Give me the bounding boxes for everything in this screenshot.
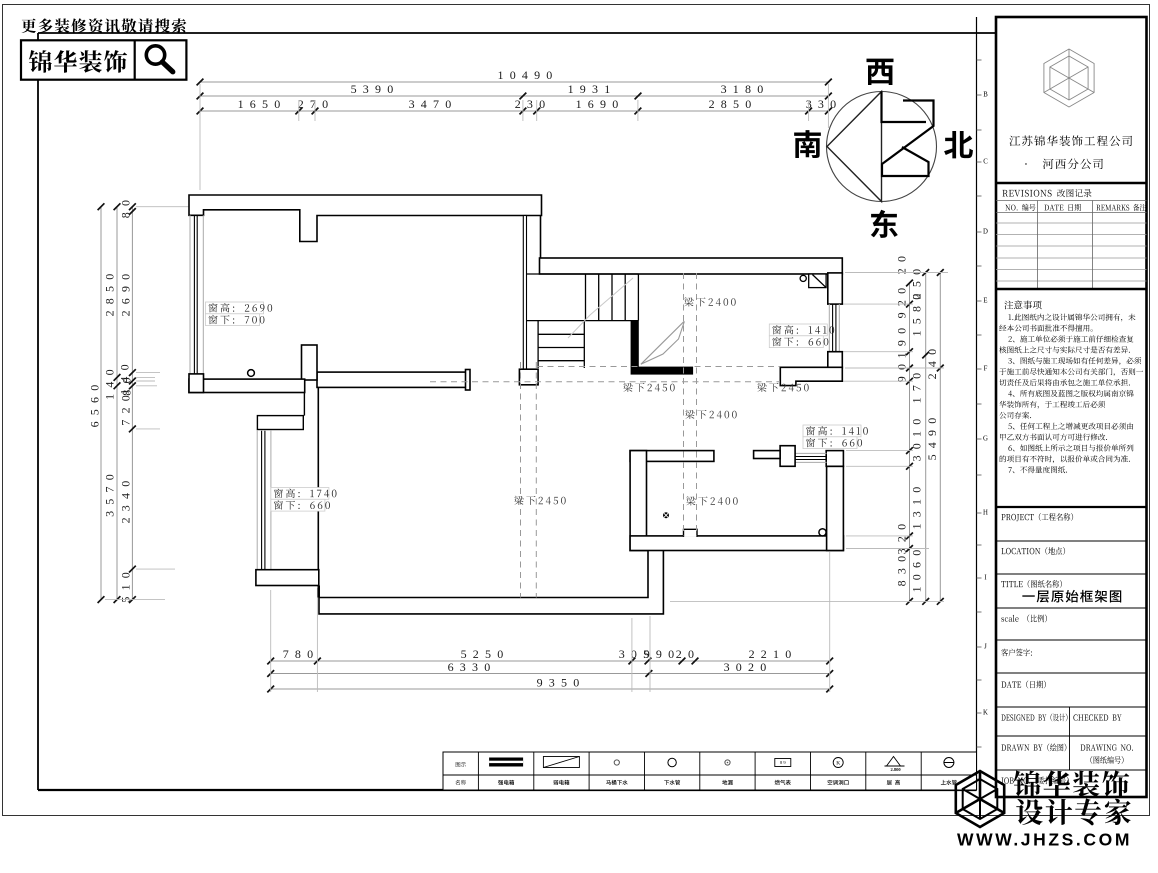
svg-text:H: H	[983, 510, 988, 517]
svg-text:190: 190	[894, 322, 908, 359]
svg-text:1690: 1690	[576, 97, 625, 111]
svg-text:1060: 1060	[910, 544, 924, 593]
svg-text:3180: 3180	[721, 82, 770, 96]
svg-text:2690: 2690	[118, 268, 132, 317]
svg-text:B: B	[983, 92, 988, 99]
svg-text:830: 830	[894, 550, 908, 587]
svg-text:C: C	[983, 159, 988, 166]
svg-text:E: E	[983, 298, 987, 305]
svg-text:20: 20	[676, 647, 700, 661]
svg-text:170: 170	[910, 367, 924, 404]
svg-text:1310: 1310	[910, 481, 924, 530]
svg-text:3010: 3010	[910, 413, 924, 462]
svg-text:K: K	[983, 710, 988, 717]
svg-text:3470: 3470	[409, 97, 458, 111]
svg-text:10490: 10490	[498, 68, 559, 82]
svg-text:920: 920	[894, 282, 908, 319]
svg-text:3570: 3570	[102, 468, 116, 517]
svg-text:240: 240	[925, 343, 939, 380]
svg-text:2850: 2850	[102, 268, 116, 317]
svg-text:330: 330	[806, 97, 843, 111]
svg-text:G: G	[983, 436, 988, 443]
svg-text:2850: 2850	[709, 97, 758, 111]
svg-text:2340: 2340	[118, 475, 132, 524]
svg-text:WWW.JHZS.COM: WWW.JHZS.COM	[957, 830, 1132, 850]
svg-text:2.800: 2.800	[890, 767, 901, 772]
svg-text:1931: 1931	[568, 82, 617, 96]
svg-text:80: 80	[118, 194, 132, 218]
svg-text:720: 720	[118, 389, 132, 426]
svg-text:8 9: 8 9	[780, 760, 786, 765]
svg-text:20: 20	[894, 250, 908, 274]
svg-text:6330: 6330	[448, 660, 497, 674]
svg-text:230: 230	[515, 97, 552, 111]
svg-text:J: J	[984, 644, 987, 651]
svg-text:D: D	[983, 229, 988, 236]
svg-text:K: K	[836, 760, 840, 766]
svg-text:1650: 1650	[238, 97, 287, 111]
svg-text:6560: 6560	[87, 379, 101, 428]
svg-text:F: F	[984, 366, 988, 373]
svg-text:2210: 2210	[749, 647, 798, 661]
svg-text:140: 140	[102, 363, 116, 400]
svg-text:780: 780	[283, 647, 320, 661]
svg-text:5390: 5390	[351, 82, 400, 96]
svg-text:1580: 1580	[910, 288, 924, 337]
svg-text:9350: 9350	[537, 675, 586, 689]
svg-text:510: 510	[118, 566, 132, 603]
svg-text:270: 270	[298, 97, 335, 111]
svg-text:5250: 5250	[461, 647, 510, 661]
svg-text:90: 90	[894, 358, 908, 382]
svg-text:3020: 3020	[724, 660, 773, 674]
svg-text:5490: 5490	[925, 412, 939, 461]
